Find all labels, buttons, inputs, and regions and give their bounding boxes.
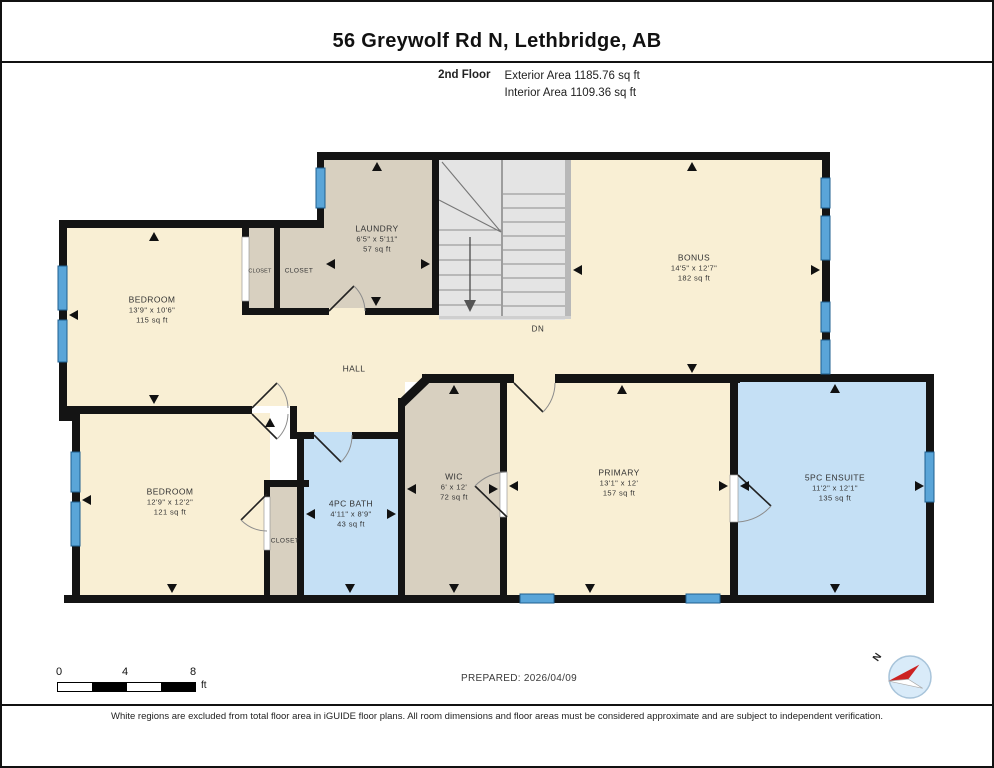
room-label-ensuite: 5PC ENSUITE 11'2" x 12'1" 135 sq ft: [805, 473, 865, 504]
stairs-dn-label: DN: [532, 325, 545, 334]
scale-strip: [57, 682, 196, 692]
scale-unit: ft: [201, 680, 207, 691]
disclaimer-text: White regions are excluded from total fl…: [2, 711, 992, 722]
laundry-window: [316, 168, 325, 208]
room-label-wic: WIC 6' x 12' 72 sq ft: [440, 472, 468, 503]
bedroom2-window-2: [71, 502, 80, 546]
floor-plan-drawing: [2, 2, 994, 768]
room-label-hall: HALL: [343, 363, 366, 374]
scale-tick-4: 4: [122, 666, 128, 678]
room-label-bedroom1: BEDROOM 13'9" x 10'6" 115 sq ft: [129, 295, 176, 326]
bonus-window-4: [821, 340, 830, 374]
bedroom1-window-1: [58, 266, 67, 310]
room-label-bath: 4PC BATH 4'11" x 8'9" 43 sq ft: [329, 499, 373, 530]
room-label-closet-c: CLOSET: [271, 538, 299, 547]
stair-bottom-edge: [439, 316, 571, 319]
stair-rail: [565, 160, 571, 318]
primary-window-1: [520, 594, 554, 603]
room-label-closet-b: CLOSET: [285, 268, 313, 277]
bedroom2-window-1: [71, 452, 80, 492]
room-label-laundry: LAUNDRY 6'5" x 5'11" 57 sq ft: [355, 224, 398, 255]
room-label-bedroom2: BEDROOM 12'9" x 12'2" 121 sq ft: [147, 487, 194, 518]
ensuite-window: [925, 452, 934, 502]
compass-icon: [887, 656, 931, 698]
bonus-window-1: [821, 178, 830, 208]
primary-window-2: [686, 594, 720, 603]
bonus-window-2: [821, 216, 830, 260]
footer-divider: [2, 704, 992, 706]
room-label-bonus: BONUS 14'5" x 12'7" 182 sq ft: [671, 253, 717, 284]
bonus-window-3: [821, 302, 830, 332]
bedroom1-window-2: [58, 320, 67, 362]
room-label-closet-a: CLOSET: [248, 268, 271, 275]
prepared-date: PREPARED: 2026/04/09: [399, 673, 639, 684]
scale-bar: 0 4 8 ft: [57, 666, 227, 700]
floor-plan-page: 56 Greywolf Rd N, Lethbridge, AB 2nd Flo…: [0, 0, 994, 768]
scale-tick-0: 0: [56, 666, 62, 678]
scale-tick-8: 8: [190, 666, 196, 678]
room-label-primary: PRIMARY 13'1" x 12' 157 sq ft: [598, 468, 639, 499]
